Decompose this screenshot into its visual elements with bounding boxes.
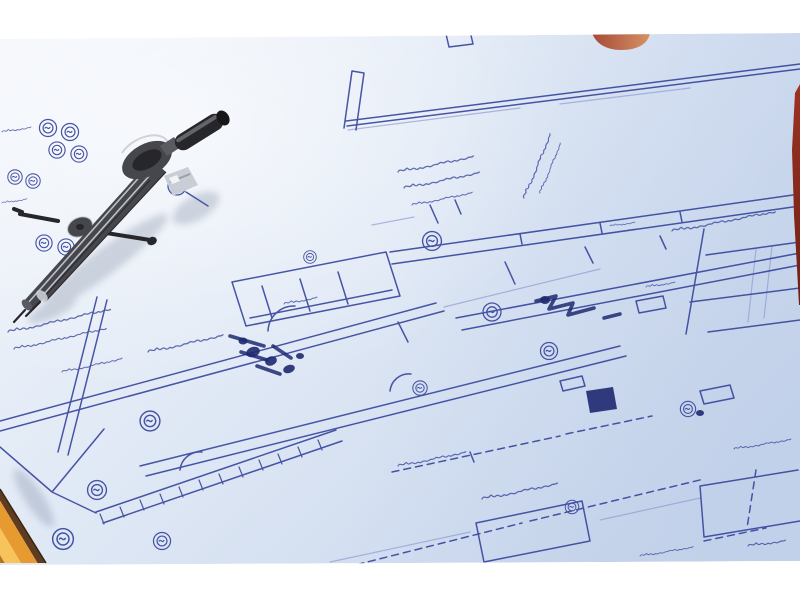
frame-top bbox=[0, 0, 800, 39]
frame-bottom bbox=[0, 561, 800, 600]
wheel-hole bbox=[76, 224, 84, 230]
paper-right-tint bbox=[0, 33, 800, 565]
blueprint-photo bbox=[0, 0, 800, 600]
